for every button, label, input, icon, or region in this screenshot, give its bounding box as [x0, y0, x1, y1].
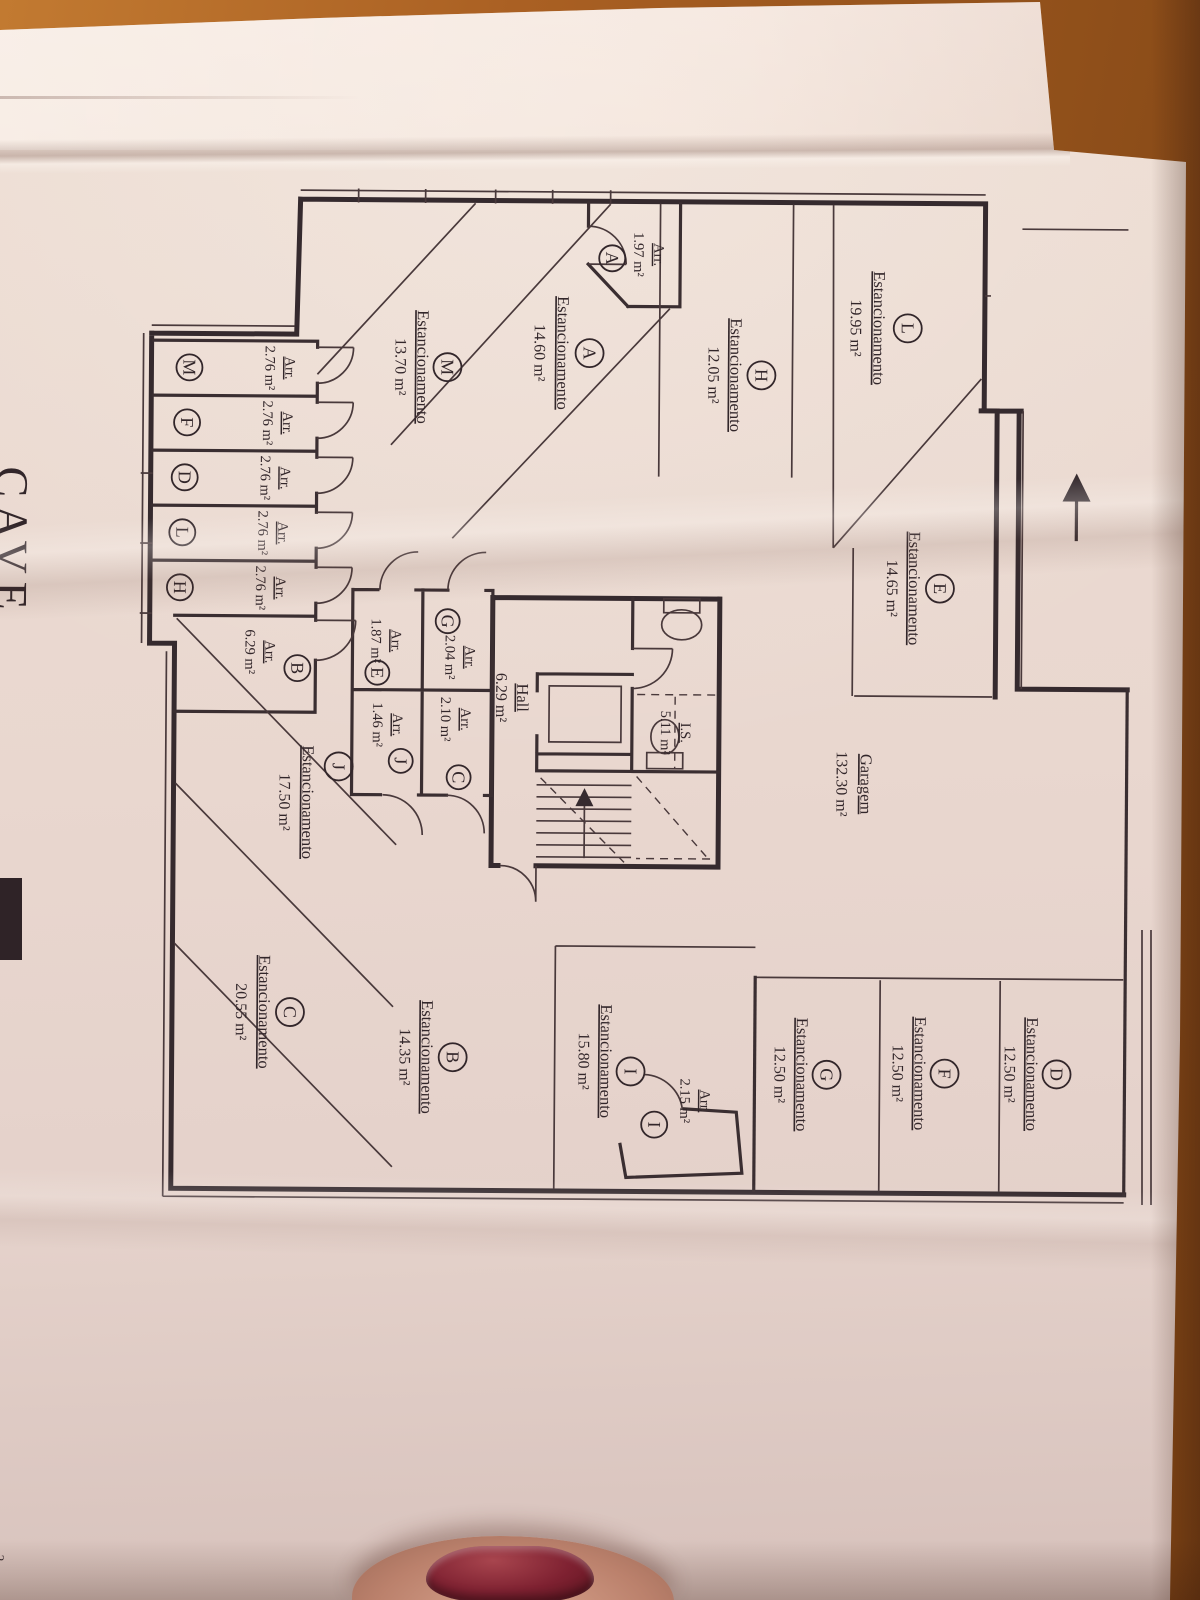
parking-M-label: M Estancionamento 13.70 m² [391, 310, 462, 424]
svg-text:1.46 m²: 1.46 m² [369, 702, 385, 747]
core-walls [491, 597, 720, 903]
svg-text:Arr.: Arr. [389, 713, 405, 736]
svg-text:6.29 m²: 6.29 m² [492, 673, 509, 723]
svg-text:J: J [329, 763, 349, 770]
svg-text:I.S.: I.S. [677, 723, 693, 743]
svg-text:G: G [816, 1068, 836, 1081]
svg-text:J: J [391, 757, 411, 764]
svg-text:G: G [438, 615, 458, 628]
svg-text:19.95 m²: 19.95 m² [847, 299, 864, 357]
svg-text:2.15 m²: 2.15 m² [676, 1078, 692, 1123]
svg-text:Estancionamento: Estancionamento [413, 310, 433, 424]
storage-M-label: Arr. 2.76 m² M [176, 345, 297, 391]
svg-text:Estancionamento: Estancionamento [792, 1018, 812, 1132]
svg-text:C: C [449, 771, 469, 783]
sink-bowl [662, 610, 702, 640]
svg-text:Estancionamento: Estancionamento [596, 1004, 616, 1118]
paper-edge-shadow [1130, 0, 1200, 1600]
svg-text:Estancionamento: Estancionamento [1022, 1017, 1042, 1131]
toilet-tank [647, 753, 683, 769]
svg-text:C: C [280, 1006, 300, 1018]
svg-text:H: H [751, 369, 771, 382]
svg-text:12.05 m²: 12.05 m² [704, 346, 721, 404]
svg-text:D: D [175, 471, 195, 484]
svg-text:A: A [602, 252, 622, 265]
svg-text:Garagem: Garagem [856, 754, 875, 815]
parking-F-label: F Estancionamento 12.50 m² [888, 1016, 959, 1130]
plan-paper: L Estancionamento 19.95 m² A Estancionam… [0, 0, 1200, 1600]
storage-G-label: Arr. 2.04 m² G [435, 609, 477, 680]
svg-text:2.76 m²: 2.76 m² [261, 346, 277, 391]
photo-of-floor-plan: L Estancionamento 19.95 m² A Estancionam… [0, 0, 1200, 1600]
svg-text:I: I [621, 1068, 641, 1074]
parking-L-label: L Estancionamento 19.95 m² [846, 271, 922, 385]
svg-text:Arr.: Arr. [650, 243, 666, 266]
svg-text:5.11 m²: 5.11 m² [657, 711, 673, 756]
parking-J-label: J Estancionamento 17.50 m² [275, 745, 353, 859]
svg-text:E: E [367, 667, 387, 678]
storage-C-label: Arr. 2.10 m² C [437, 697, 474, 790]
svg-text:Arr.: Arr. [387, 629, 403, 652]
svg-text:14.60 m²: 14.60 m² [530, 324, 547, 382]
svg-text:Estancionamento: Estancionamento [869, 271, 889, 385]
cut-off-drawing-block [0, 878, 22, 960]
svg-text:Estancionamento: Estancionamento [298, 745, 318, 859]
svg-text:12.50 m²: 12.50 m² [770, 1046, 787, 1104]
svg-text:1.87 m²: 1.87 m² [367, 618, 383, 663]
svg-text:Arr.: Arr. [457, 708, 473, 731]
svg-text:Arr.: Arr. [281, 357, 297, 380]
garage-label: Garagem 132.30 m² [832, 751, 875, 817]
storage-D-label: Arr. 2.76 m² D [172, 455, 293, 501]
parking-G-label: G Estancionamento 12.50 m² [770, 1018, 841, 1132]
svg-text:Estancionamento: Estancionamento [417, 1000, 437, 1114]
svg-text:L: L [898, 323, 918, 334]
svg-text:Hall: Hall [513, 683, 532, 712]
svg-text:Estancionamento: Estancionamento [255, 955, 275, 1069]
hall-label: Hall 6.29 m² [492, 673, 532, 723]
svg-text:Arr.: Arr. [461, 646, 477, 669]
svg-text:Arr.: Arr. [279, 412, 295, 435]
svg-text:I: I [644, 1122, 664, 1128]
svg-text:Estancionamento: Estancionamento [726, 318, 746, 432]
fingernail [426, 1546, 594, 1600]
parking-D-label: D Estancionamento 12.50 m² [1000, 1017, 1071, 1131]
svg-text:2.10 m²: 2.10 m² [437, 697, 453, 742]
svg-text:M: M [437, 359, 457, 375]
storage-E-label: Arr. 1.87 m² E [365, 618, 403, 685]
svg-text:A: A [580, 347, 600, 360]
parking-C-label: C Estancionamento 20.55 m² [232, 955, 305, 1069]
svg-text:14.35 m²: 14.35 m² [395, 1028, 412, 1086]
elevator-cab [549, 686, 621, 743]
svg-text:E: E [930, 583, 950, 594]
ceiling-projection-dashes [634, 694, 715, 861]
storage-I-label: Arr. 2.15 m² I [641, 1078, 712, 1138]
storage-A-label: Arr. 1.97 m² A [599, 232, 666, 278]
svg-text:13.70 m²: 13.70 m² [391, 338, 408, 396]
svg-text:D: D [1046, 1068, 1066, 1081]
svg-text:15.80 m²: 15.80 m² [574, 1032, 591, 1090]
svg-text:20.55 m²: 20.55 m² [232, 983, 249, 1041]
svg-text:6.29 m²: 6.29 m² [241, 629, 257, 674]
svg-text:F: F [177, 417, 197, 427]
svg-text:2.04 m²: 2.04 m² [441, 635, 457, 680]
svg-text:12.50 m²: 12.50 m² [1000, 1045, 1017, 1103]
rotated-plan: L Estancionamento 19.95 m² A Estancionam… [0, 186, 1131, 1569]
svg-text:2.76 m²: 2.76 m² [259, 401, 275, 446]
svg-text:F: F [935, 1069, 955, 1079]
parking-H-label: H Estancionamento 12.05 m² [704, 318, 776, 432]
svg-text:Arr.: Arr. [261, 640, 277, 663]
stairs [536, 778, 632, 863]
svg-text:132.30 m²: 132.30 m² [832, 751, 849, 817]
hall-door [500, 866, 536, 902]
svg-text:1.97 m²: 1.97 m² [630, 232, 646, 277]
parking-A-label: A Estancionamento 14.60 m² [530, 296, 604, 410]
svg-text:2.76 m²: 2.76 m² [257, 456, 273, 501]
svg-text:B: B [287, 662, 307, 674]
parking-I-label: I Estancionamento 15.80 m² [574, 1004, 645, 1118]
svg-text:12.50 m²: 12.50 m² [888, 1045, 905, 1103]
svg-text:Estancionamento: Estancionamento [910, 1017, 930, 1131]
parking-B-label: B Estancionamento 14.35 m² [395, 1000, 467, 1114]
storage-J-label: Arr. 1.46 m² J [369, 702, 413, 773]
svg-text:Estancionamento: Estancionamento [553, 296, 573, 410]
svg-text:Arr.: Arr. [277, 466, 293, 489]
bathroom-door [632, 648, 672, 688]
svg-text:M: M [179, 359, 199, 375]
storage-B-label: B Arr. 6.29 m² [241, 629, 310, 681]
svg-text:17.50 m²: 17.50 m² [275, 773, 292, 831]
svg-text:B: B [443, 1051, 463, 1063]
svg-text:Arr.: Arr. [696, 1089, 712, 1112]
floor-plan-drawing: L Estancionamento 19.95 m² A Estancionam… [0, 0, 1200, 1600]
storage-F-label: Arr. 2.76 m² F [174, 400, 295, 446]
